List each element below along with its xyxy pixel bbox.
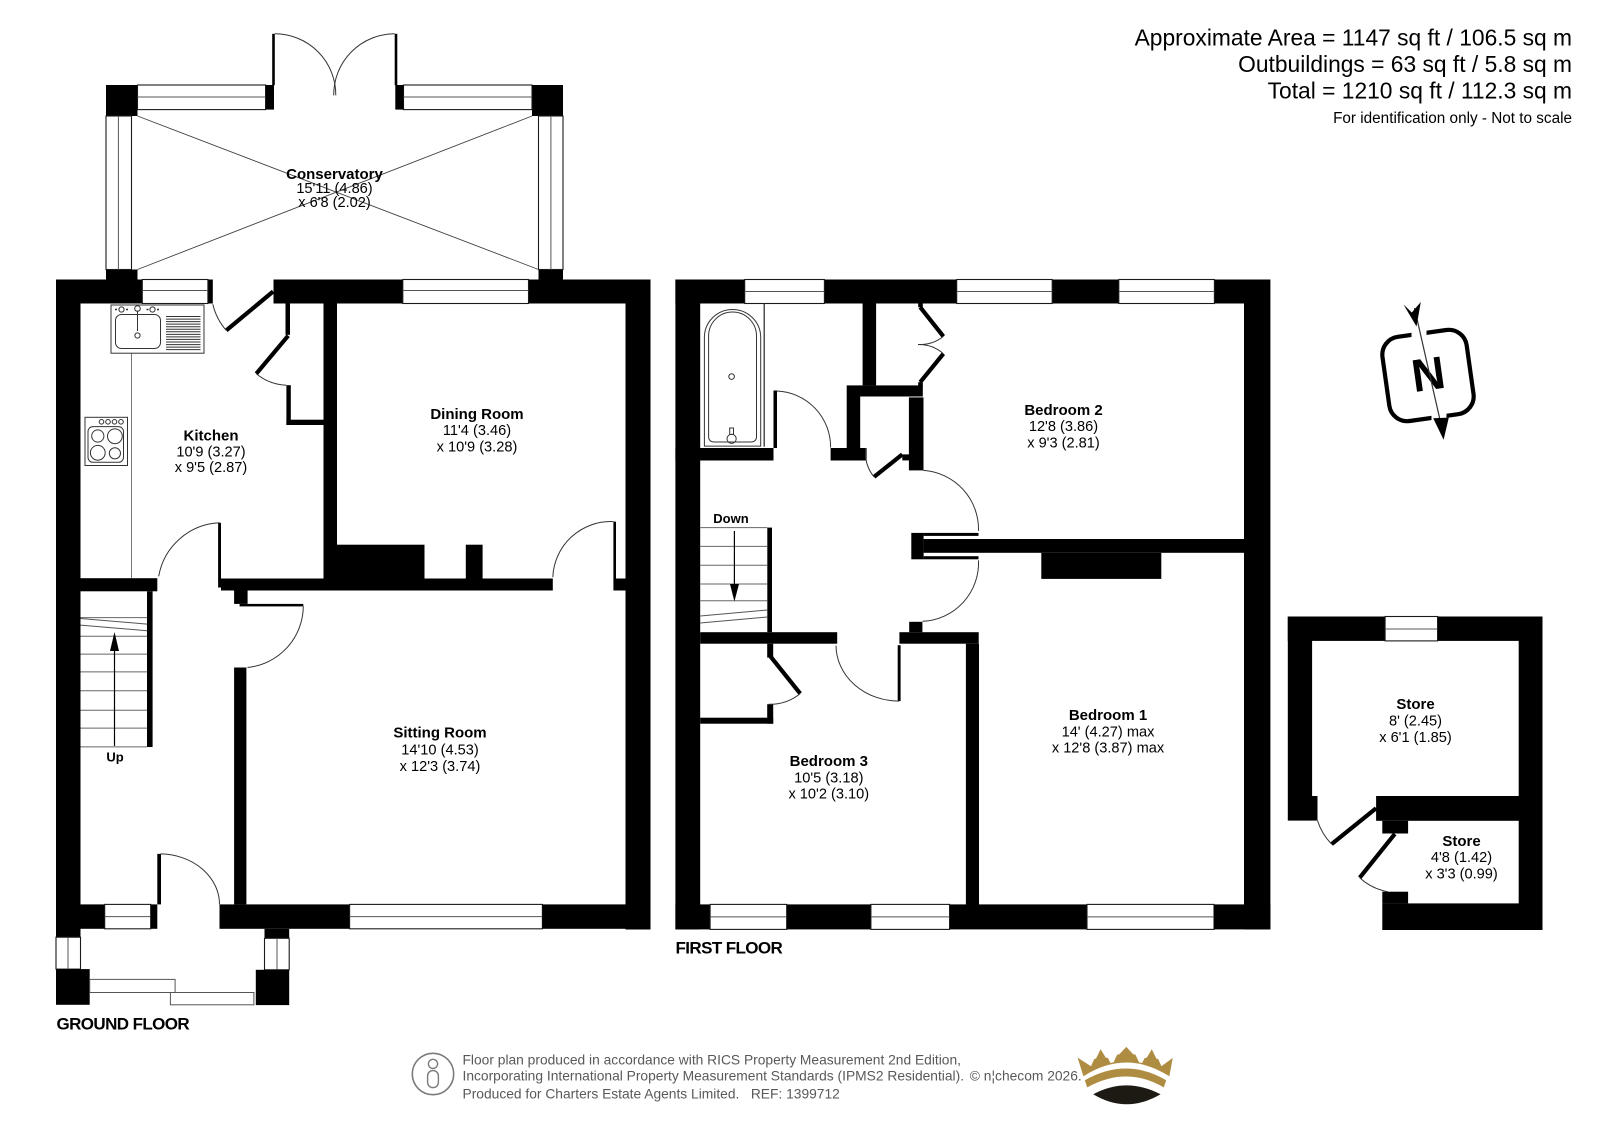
svg-text:Up: Up: [106, 750, 123, 765]
svg-text:Bedroom 2: Bedroom 2: [1024, 402, 1102, 419]
svg-text:4'8 (1.42): 4'8 (1.42): [1431, 850, 1492, 866]
svg-text:Incorporating International Pr: Incorporating International Property Mea…: [463, 1068, 965, 1083]
svg-text:x 10'9 (3.28): x 10'9 (3.28): [437, 439, 518, 455]
svg-text:Total = 1210 sq ft / 112.3 sq: Total = 1210 sq ft / 112.3 sq m: [1268, 77, 1572, 103]
svg-text:10'5 (3.18): 10'5 (3.18): [794, 770, 863, 786]
svg-text:© n¦checom 2026.: © n¦checom 2026.: [970, 1068, 1082, 1083]
svg-text:Sitting Room: Sitting Room: [393, 725, 486, 742]
svg-text:Outbuildings = 63 sq ft / 5.8: Outbuildings = 63 sq ft / 5.8 sq m: [1238, 51, 1572, 77]
svg-text:x 6'8 (2.02): x 6'8 (2.02): [298, 195, 371, 211]
svg-text:Produced for Charters Estate A: Produced for Charters Estate Agents Limi…: [463, 1087, 840, 1102]
svg-text:x 9'5 (2.87): x 9'5 (2.87): [175, 460, 248, 476]
svg-text:Down: Down: [713, 511, 748, 526]
svg-text:Dining Room: Dining Room: [430, 406, 523, 423]
svg-text:14' (4.27) max: 14' (4.27) max: [1062, 725, 1156, 741]
svg-text:Store: Store: [1396, 696, 1434, 713]
svg-text:Kitchen: Kitchen: [183, 428, 238, 445]
svg-text:14'10 (4.53): 14'10 (4.53): [401, 743, 478, 759]
svg-text:FIRST FLOOR: FIRST FLOOR: [676, 939, 783, 958]
svg-text:x 12'3 (3.74): x 12'3 (3.74): [400, 759, 481, 775]
svg-text:x 6'1 (1.85): x 6'1 (1.85): [1379, 730, 1452, 746]
svg-text:12'8 (3.86): 12'8 (3.86): [1029, 419, 1098, 435]
svg-text:Floor plan produced in accorda: Floor plan produced in accordance with R…: [463, 1052, 961, 1067]
svg-text:For identification only - Not: For identification only - Not to scale: [1333, 110, 1572, 127]
svg-text:Store: Store: [1442, 833, 1480, 850]
svg-text:Bedroom 1: Bedroom 1: [1069, 707, 1147, 724]
svg-text:x 3'3 (0.99): x 3'3 (0.99): [1425, 867, 1498, 883]
svg-text:GROUND FLOOR: GROUND FLOOR: [57, 1014, 190, 1033]
svg-text:x 12'8 (3.87) max: x 12'8 (3.87) max: [1052, 741, 1165, 757]
svg-text:11'4 (3.46): 11'4 (3.46): [443, 423, 511, 439]
svg-text:Bedroom 3: Bedroom 3: [790, 753, 868, 770]
svg-text:x 10'2 (3.10): x 10'2 (3.10): [788, 787, 869, 803]
svg-text:x 9'3 (2.81): x 9'3 (2.81): [1027, 436, 1100, 452]
svg-text:Approximate Area = 1147 sq ft: Approximate Area = 1147 sq ft / 106.5 sq…: [1135, 24, 1572, 50]
svg-text:10'9 (3.27): 10'9 (3.27): [176, 444, 245, 460]
svg-text:8' (2.45): 8' (2.45): [1389, 714, 1442, 730]
